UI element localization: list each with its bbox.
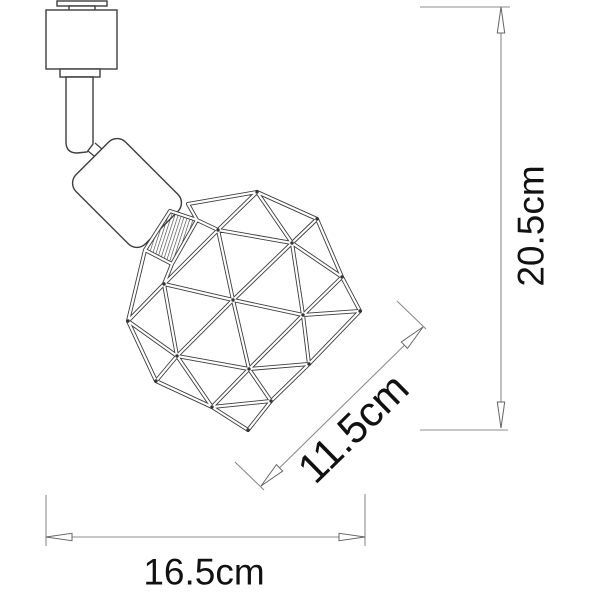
dimension-height: 20.5cm <box>420 7 552 430</box>
arrowhead-lower-left <box>261 465 283 486</box>
cage-node <box>154 379 157 382</box>
product-dimension-diagram: 20.5cm 11.5cm 16.5cm <box>0 0 600 600</box>
cage-node <box>126 319 129 322</box>
dimension-cage-diagonal: 11.5cm <box>235 301 426 492</box>
cage-node <box>231 298 234 301</box>
cage-node <box>216 228 219 231</box>
extension-tick-upper <box>397 301 426 329</box>
track-plate <box>57 1 107 6</box>
cage-node <box>358 309 361 312</box>
cage-node <box>162 282 165 285</box>
cage-node <box>307 362 310 365</box>
cage-node <box>315 217 318 220</box>
arrowhead-right <box>339 533 365 540</box>
adapter-body <box>46 10 117 69</box>
cage-node <box>255 190 258 193</box>
cage-node <box>290 241 293 244</box>
track-adapter <box>46 1 117 164</box>
extension-tick-lower <box>235 462 264 490</box>
dimension-width: 16.5cm <box>46 494 365 593</box>
arrowhead-left <box>46 533 72 540</box>
diagram-canvas: 20.5cm 11.5cm 16.5cm <box>0 0 600 600</box>
cage-node <box>210 405 213 408</box>
wire-cage <box>126 190 361 431</box>
cage-node <box>247 367 250 370</box>
adapter-collar <box>60 69 100 77</box>
cage-node <box>301 313 304 316</box>
dimension-height-label: 20.5cm <box>511 165 552 286</box>
arrowhead-down <box>497 402 504 428</box>
cage-node <box>340 275 343 278</box>
dimension-width-label: 16.5cm <box>143 552 264 593</box>
adapter-stem <box>66 77 93 153</box>
dimension-diagonal-label: 11.5cm <box>289 364 418 492</box>
cage-node <box>175 354 178 357</box>
cage-node <box>269 399 272 402</box>
arrowhead-upper-right <box>401 327 423 348</box>
cage-node <box>246 428 249 431</box>
arrowhead-up <box>497 7 504 33</box>
